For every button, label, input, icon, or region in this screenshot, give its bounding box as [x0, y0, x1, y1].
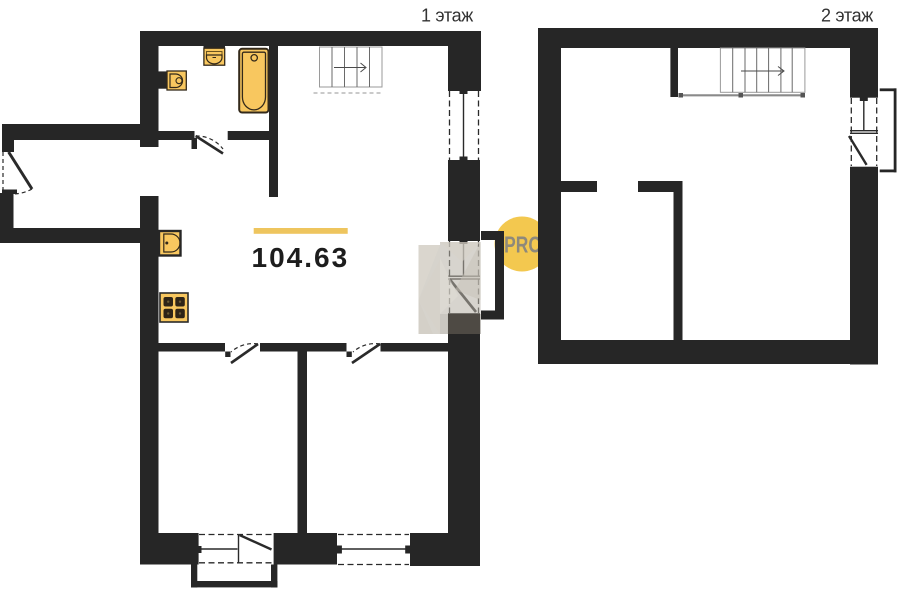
- svg-text:104.63: 104.63: [252, 242, 350, 273]
- svg-text:1 этаж: 1 этаж: [421, 6, 473, 26]
- svg-text:2 этаж: 2 этаж: [821, 6, 873, 26]
- svg-text:PRO: PRO: [504, 232, 542, 258]
